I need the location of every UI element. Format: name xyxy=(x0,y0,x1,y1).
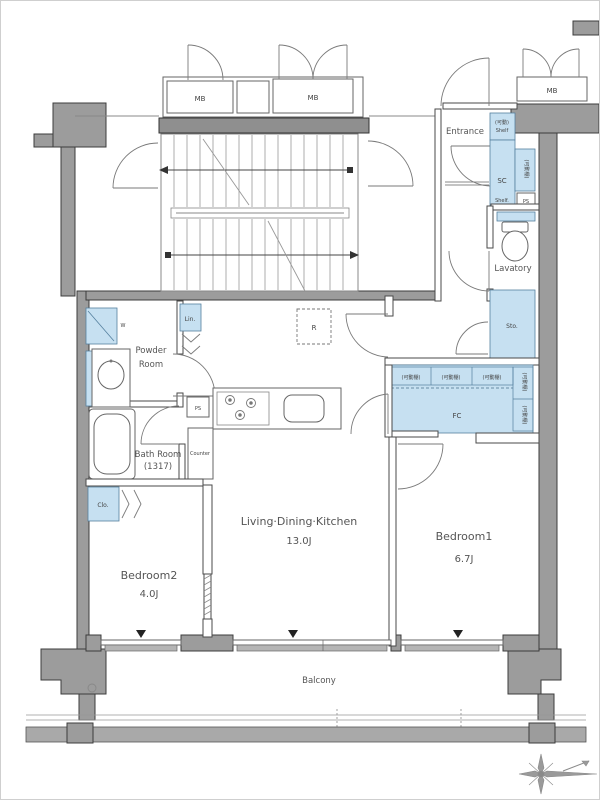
ldk-size: 13.0J xyxy=(286,536,311,547)
fc-side-shelf2-label: (可動棚) xyxy=(521,406,528,425)
fc-shelf2-label: (可動棚) xyxy=(442,374,461,381)
floor-plan-drawing: MB MB MB xyxy=(1,1,599,799)
mb-corner-label: MB xyxy=(547,87,558,95)
bedroom1-label: Bedroom1 xyxy=(436,530,493,543)
fc-shelf1-label: (可動棚) xyxy=(402,374,421,381)
storage-label: Sto. xyxy=(506,323,518,330)
bedroom1-size: 6.7J xyxy=(455,554,474,565)
balcony: Balcony xyxy=(26,676,586,743)
fc-side-shelf1-label: (可動棚) xyxy=(521,373,528,392)
upper-shelf-label-2: Shelf xyxy=(496,128,509,134)
bedroom2-label: Bedroom2 xyxy=(121,569,178,582)
powder-room: W Powder Room Lin. xyxy=(86,301,215,407)
fc-shelf3-label: (可動棚) xyxy=(483,374,502,381)
mb-right-label: MB xyxy=(308,94,319,102)
fc-closet: FC (可動棚) (可動棚) (可動棚) (可動棚) (可動棚) xyxy=(385,358,539,443)
washer-label: W xyxy=(121,323,126,329)
upper-shelf-label-1: (可動) xyxy=(495,119,509,126)
mb-left-label: MB xyxy=(195,95,206,103)
bath-room-label-2: (1317) xyxy=(144,462,172,472)
ldk-label: Living·Dining·Kitchen xyxy=(241,515,358,528)
linen-label: Lin. xyxy=(185,316,196,323)
kitchen: R xyxy=(213,309,341,429)
floor-plan: MB MB MB xyxy=(0,0,600,800)
entrance-label: Entrance xyxy=(446,127,484,137)
bedroom2-size: 4.0J xyxy=(140,589,159,600)
ps-kitchen-label: PS xyxy=(195,406,201,412)
counter-label: Counter xyxy=(190,451,211,457)
powder-room-label-1: Powder xyxy=(135,346,167,356)
refrigerator-label: R xyxy=(312,324,317,332)
room-labels: Bedroom2 4.0J Living·Dining·Kitchen 13.0… xyxy=(121,515,493,600)
sc-side-shelf-label: (可動棚) xyxy=(523,160,530,179)
balcony-label: Balcony xyxy=(302,676,336,686)
balcony-windows xyxy=(101,630,503,651)
compass-icon xyxy=(519,754,597,794)
bath-room-label-1: Bath Room xyxy=(135,450,182,460)
powder-room-label-2: Room xyxy=(139,360,163,370)
fc-label: FC xyxy=(453,412,462,420)
closet-label: Clo. xyxy=(97,502,108,509)
lavatory: Lavatory xyxy=(449,204,539,301)
shoe-closet-label: SC xyxy=(497,177,506,185)
lavatory-label: Lavatory xyxy=(494,264,531,274)
bath-room: Bath Room (1317) Counter PS xyxy=(89,397,213,481)
stairwell xyxy=(75,116,437,291)
interior-walls xyxy=(346,296,443,646)
shelf-label: Shelf. xyxy=(495,198,509,204)
bedroom2-walls: Clo. xyxy=(86,479,212,637)
storage-room: Sto. xyxy=(456,290,535,359)
